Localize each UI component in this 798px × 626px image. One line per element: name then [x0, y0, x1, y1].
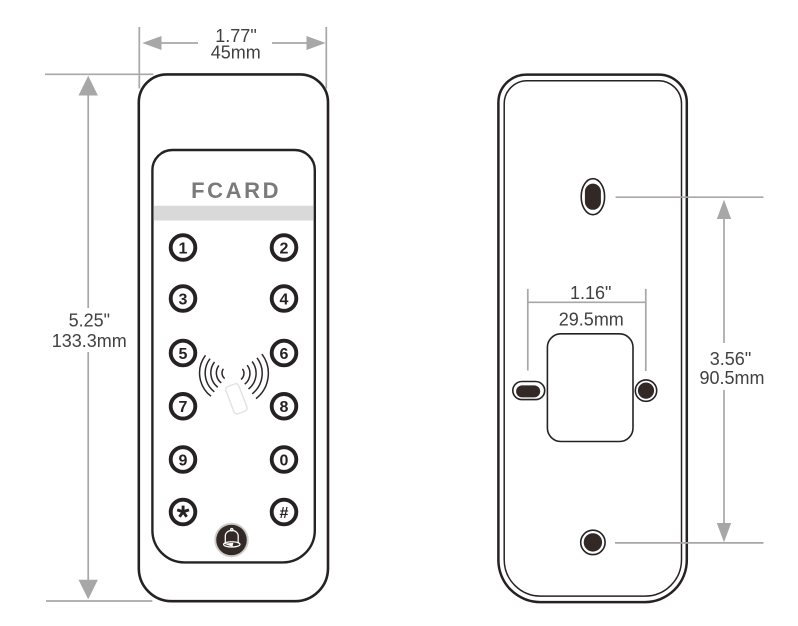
svg-text:7: 7	[179, 399, 188, 416]
svg-text:45mm: 45mm	[211, 42, 261, 62]
svg-text:5: 5	[179, 346, 188, 363]
svg-text:9: 9	[179, 452, 188, 469]
svg-text:90.5mm: 90.5mm	[699, 368, 764, 388]
svg-text:#: #	[280, 505, 289, 522]
svg-text:2: 2	[280, 240, 289, 257]
svg-text:3: 3	[179, 291, 188, 308]
svg-text:5.25": 5.25"	[69, 311, 110, 331]
svg-text:29.5mm: 29.5mm	[559, 309, 624, 329]
svg-text:FCARD: FCARD	[191, 178, 281, 203]
svg-text:8: 8	[280, 399, 289, 416]
svg-text:3.56": 3.56"	[710, 349, 751, 369]
svg-text:0: 0	[280, 452, 289, 469]
svg-text:1.16": 1.16"	[570, 283, 611, 303]
svg-text:1: 1	[179, 240, 188, 257]
svg-text:6: 6	[280, 346, 289, 363]
svg-text:4: 4	[280, 291, 289, 308]
svg-text:133.3mm: 133.3mm	[52, 331, 127, 351]
